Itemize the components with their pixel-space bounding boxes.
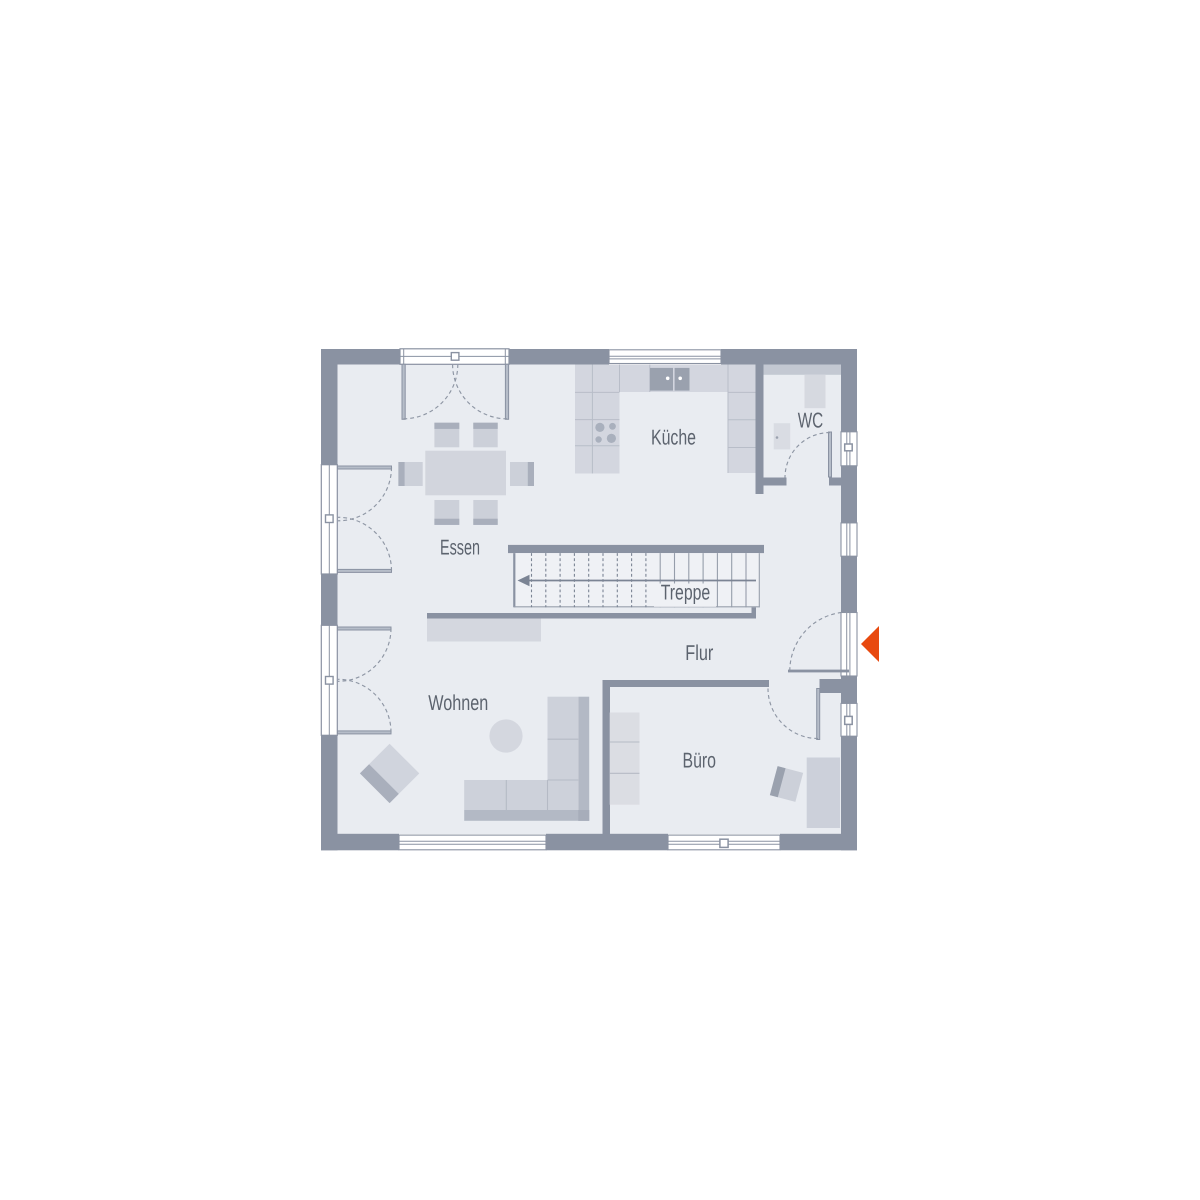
svg-text:WC: WC <box>798 409 824 433</box>
svg-text:Treppe: Treppe <box>661 581 711 605</box>
svg-text:Wohnen: Wohnen <box>428 691 488 715</box>
svg-text:Büro: Büro <box>683 749 717 773</box>
svg-text:Essen: Essen <box>440 535 480 559</box>
svg-text:Küche: Küche <box>651 425 696 449</box>
svg-text:Flur: Flur <box>685 641 713 665</box>
